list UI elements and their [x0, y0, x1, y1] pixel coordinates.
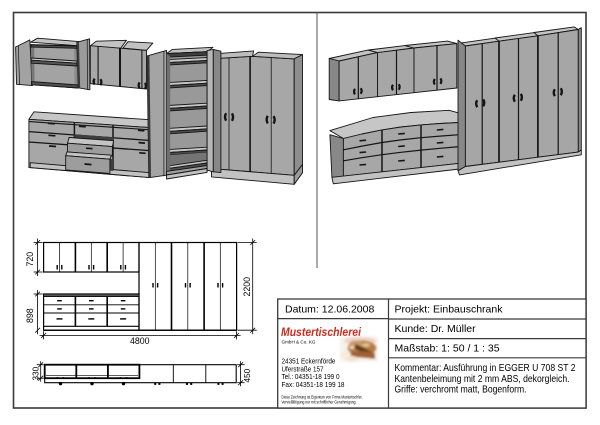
svg-text:720: 720 [25, 252, 35, 267]
svg-text:Vervielfältigung nur mit schri: Vervielfältigung nur mit schriftlicher G… [282, 399, 357, 404]
svg-text:Griffe: verchromt matt, Bogenf: Griffe: verchromt matt, Bogenform. [395, 384, 527, 396]
svg-text:330: 330 [32, 366, 41, 380]
svg-text:Fax: 04351-18 199 18: Fax: 04351-18 199 18 [282, 380, 345, 389]
svg-text:Datum: 12.06.2008: Datum: 12.06.2008 [285, 304, 374, 316]
svg-text:2200: 2200 [242, 277, 252, 297]
svg-text:4800: 4800 [130, 336, 150, 346]
svg-text:898: 898 [25, 308, 35, 323]
svg-text:GmbH & Co. KG: GmbH & Co. KG [282, 340, 316, 345]
svg-text:Maßstab: 1: 50 / 1 : 35: Maßstab: 1: 50 / 1 : 35 [395, 343, 500, 355]
svg-text:Projekt: Einbauschrank: Projekt: Einbauschrank [395, 304, 504, 316]
svg-text:450: 450 [243, 368, 252, 382]
svg-text:Kunde: Dr. Müller: Kunde: Dr. Müller [395, 323, 477, 335]
